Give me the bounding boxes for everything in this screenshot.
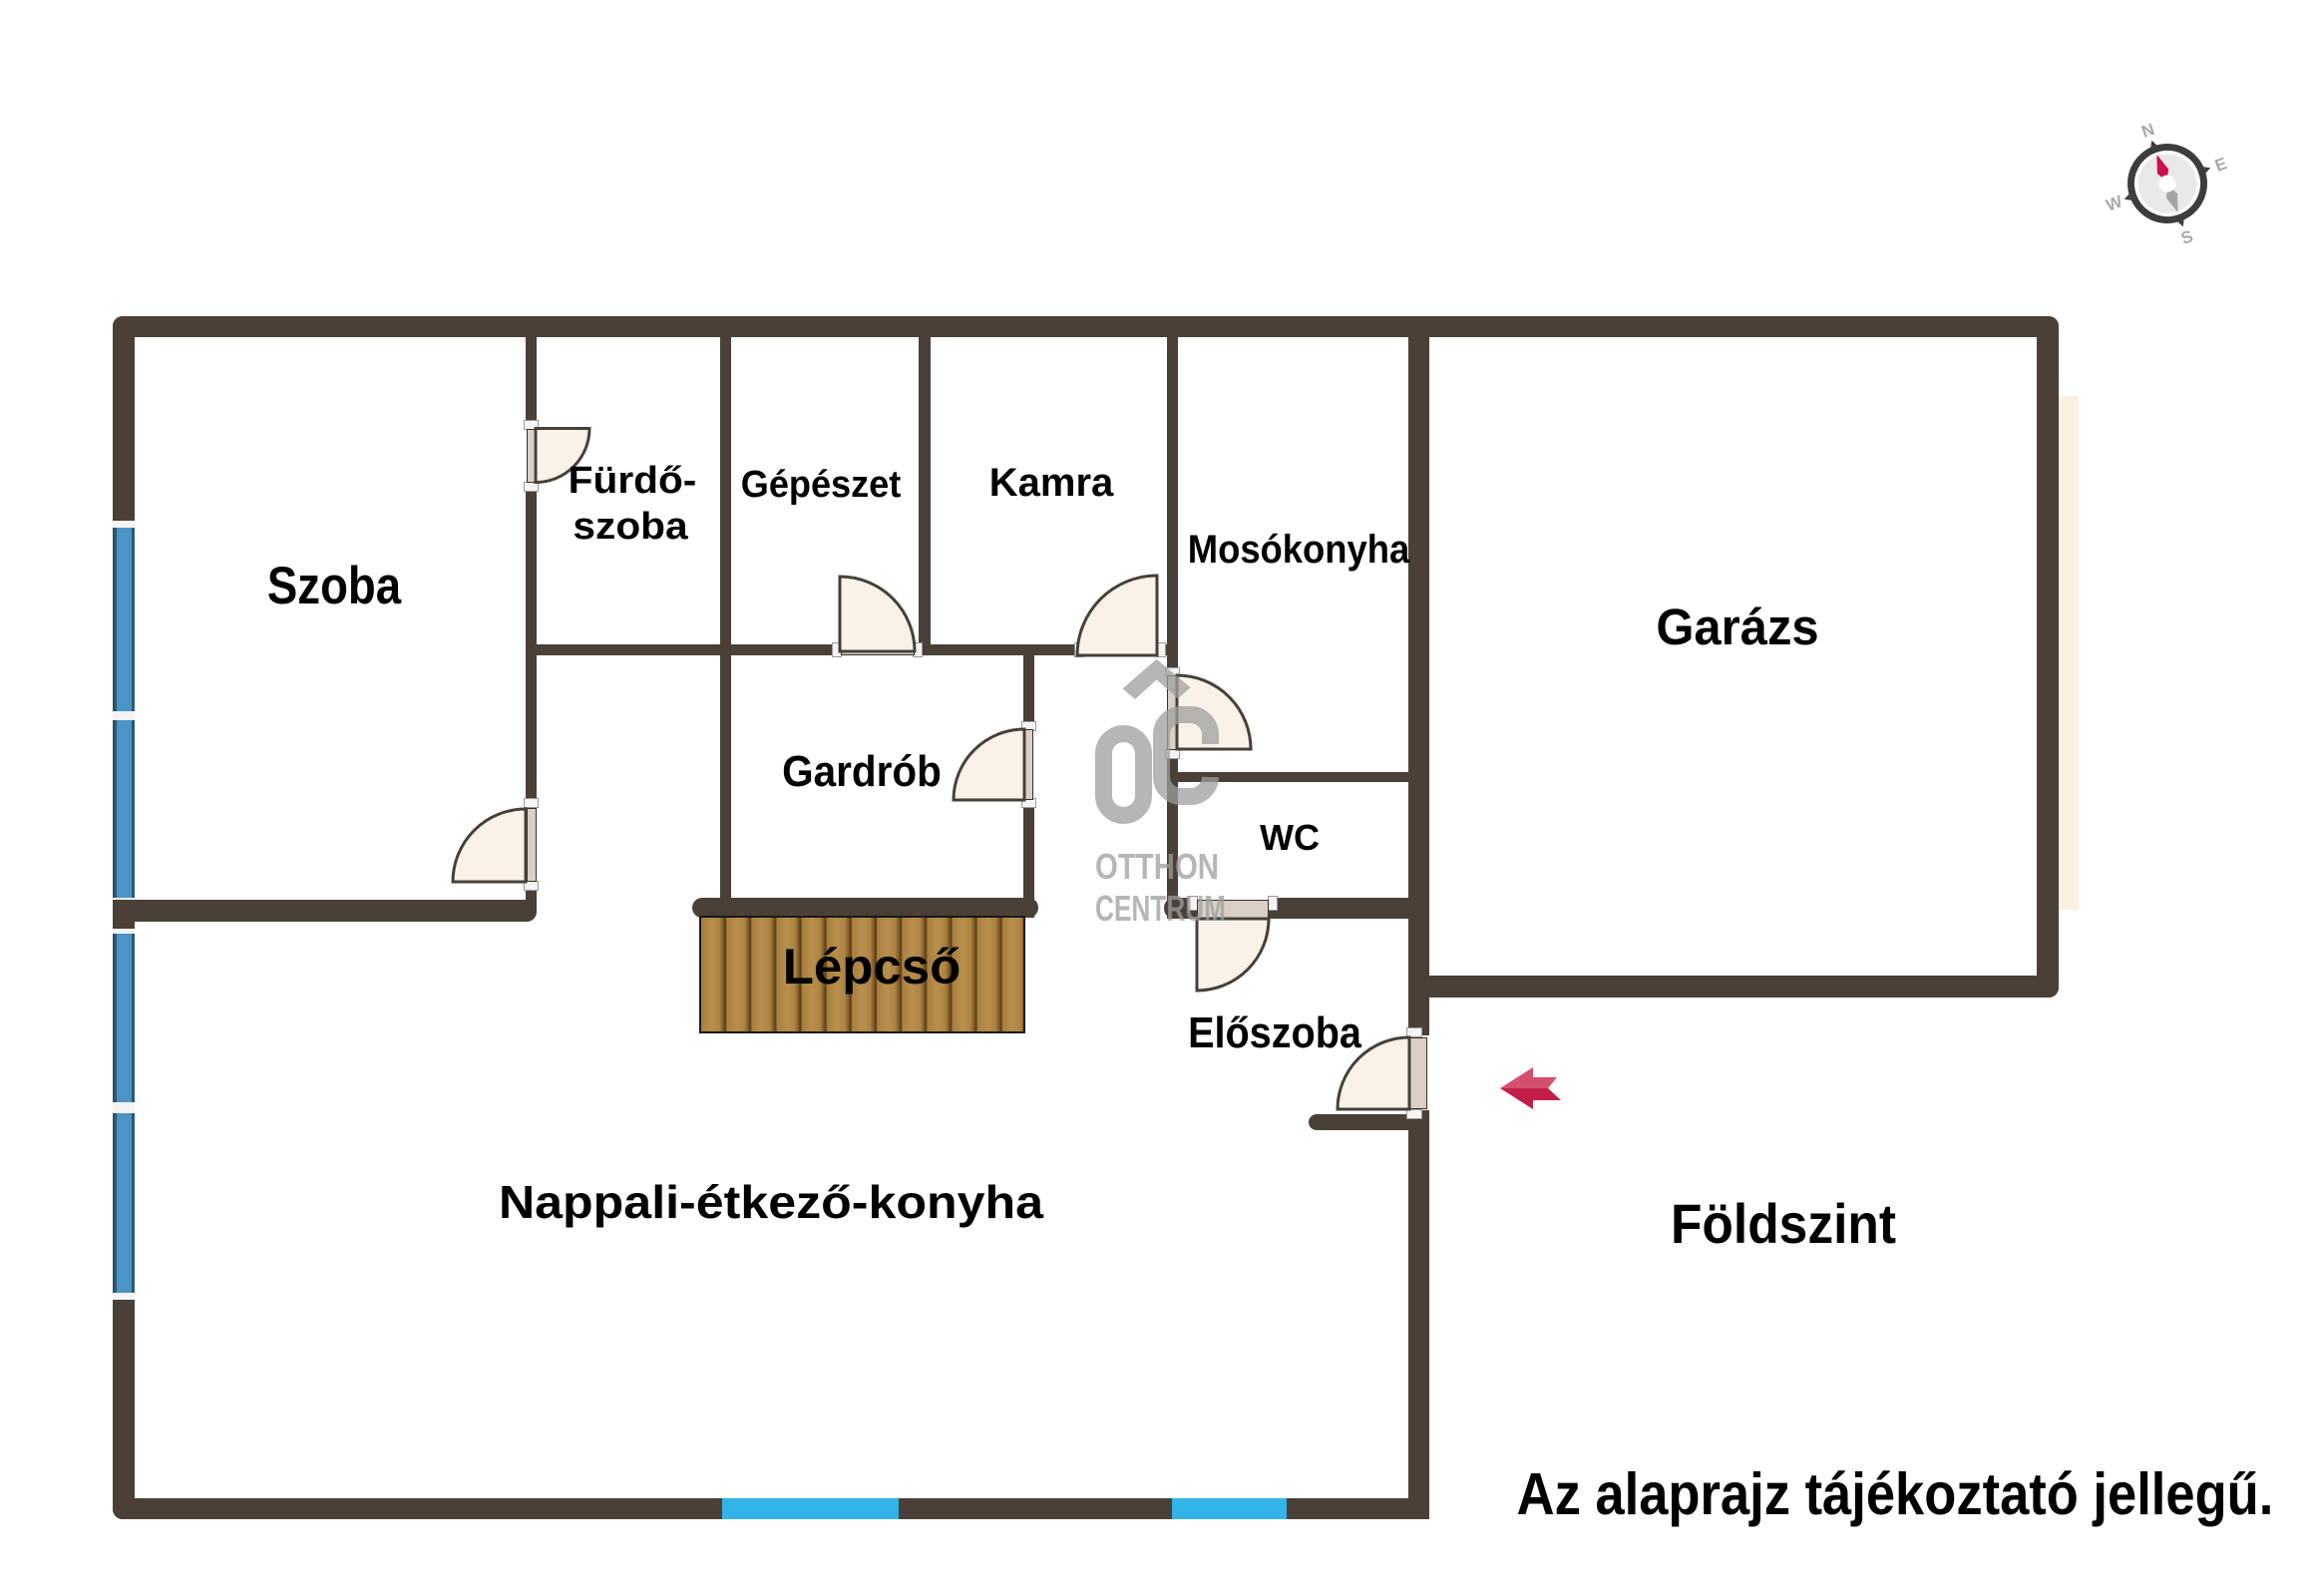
svg-text:CENTRUM: CENTRUM <box>1095 888 1226 929</box>
svg-text:W: W <box>2104 192 2125 215</box>
svg-text:S: S <box>2178 226 2195 248</box>
svg-text:N: N <box>2139 120 2157 142</box>
svg-text:E: E <box>2212 154 2229 176</box>
svg-text:OTTHON: OTTHON <box>1095 846 1219 887</box>
